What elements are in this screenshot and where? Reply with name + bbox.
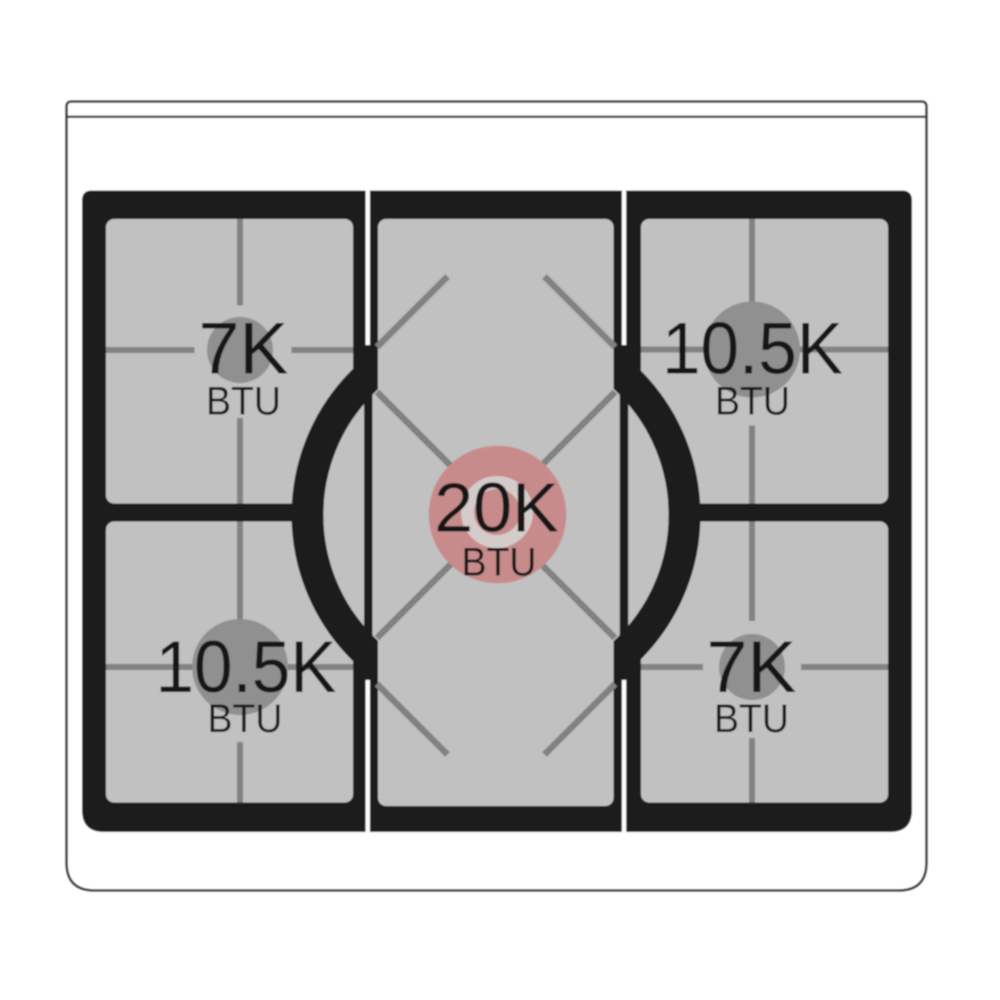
- svg-text:7K: 7K: [199, 307, 289, 390]
- svg-text:BTU: BTU: [462, 541, 537, 585]
- svg-text:10.5K: 10.5K: [662, 307, 843, 390]
- svg-text:BTU: BTU: [206, 380, 281, 424]
- svg-text:20K: 20K: [434, 469, 559, 547]
- svg-text:BTU: BTU: [714, 697, 789, 741]
- svg-text:10.5K: 10.5K: [156, 625, 337, 708]
- svg-text:7K: 7K: [707, 625, 797, 708]
- svg-text:BTU: BTU: [715, 380, 790, 424]
- svg-text:BTU: BTU: [208, 697, 283, 741]
